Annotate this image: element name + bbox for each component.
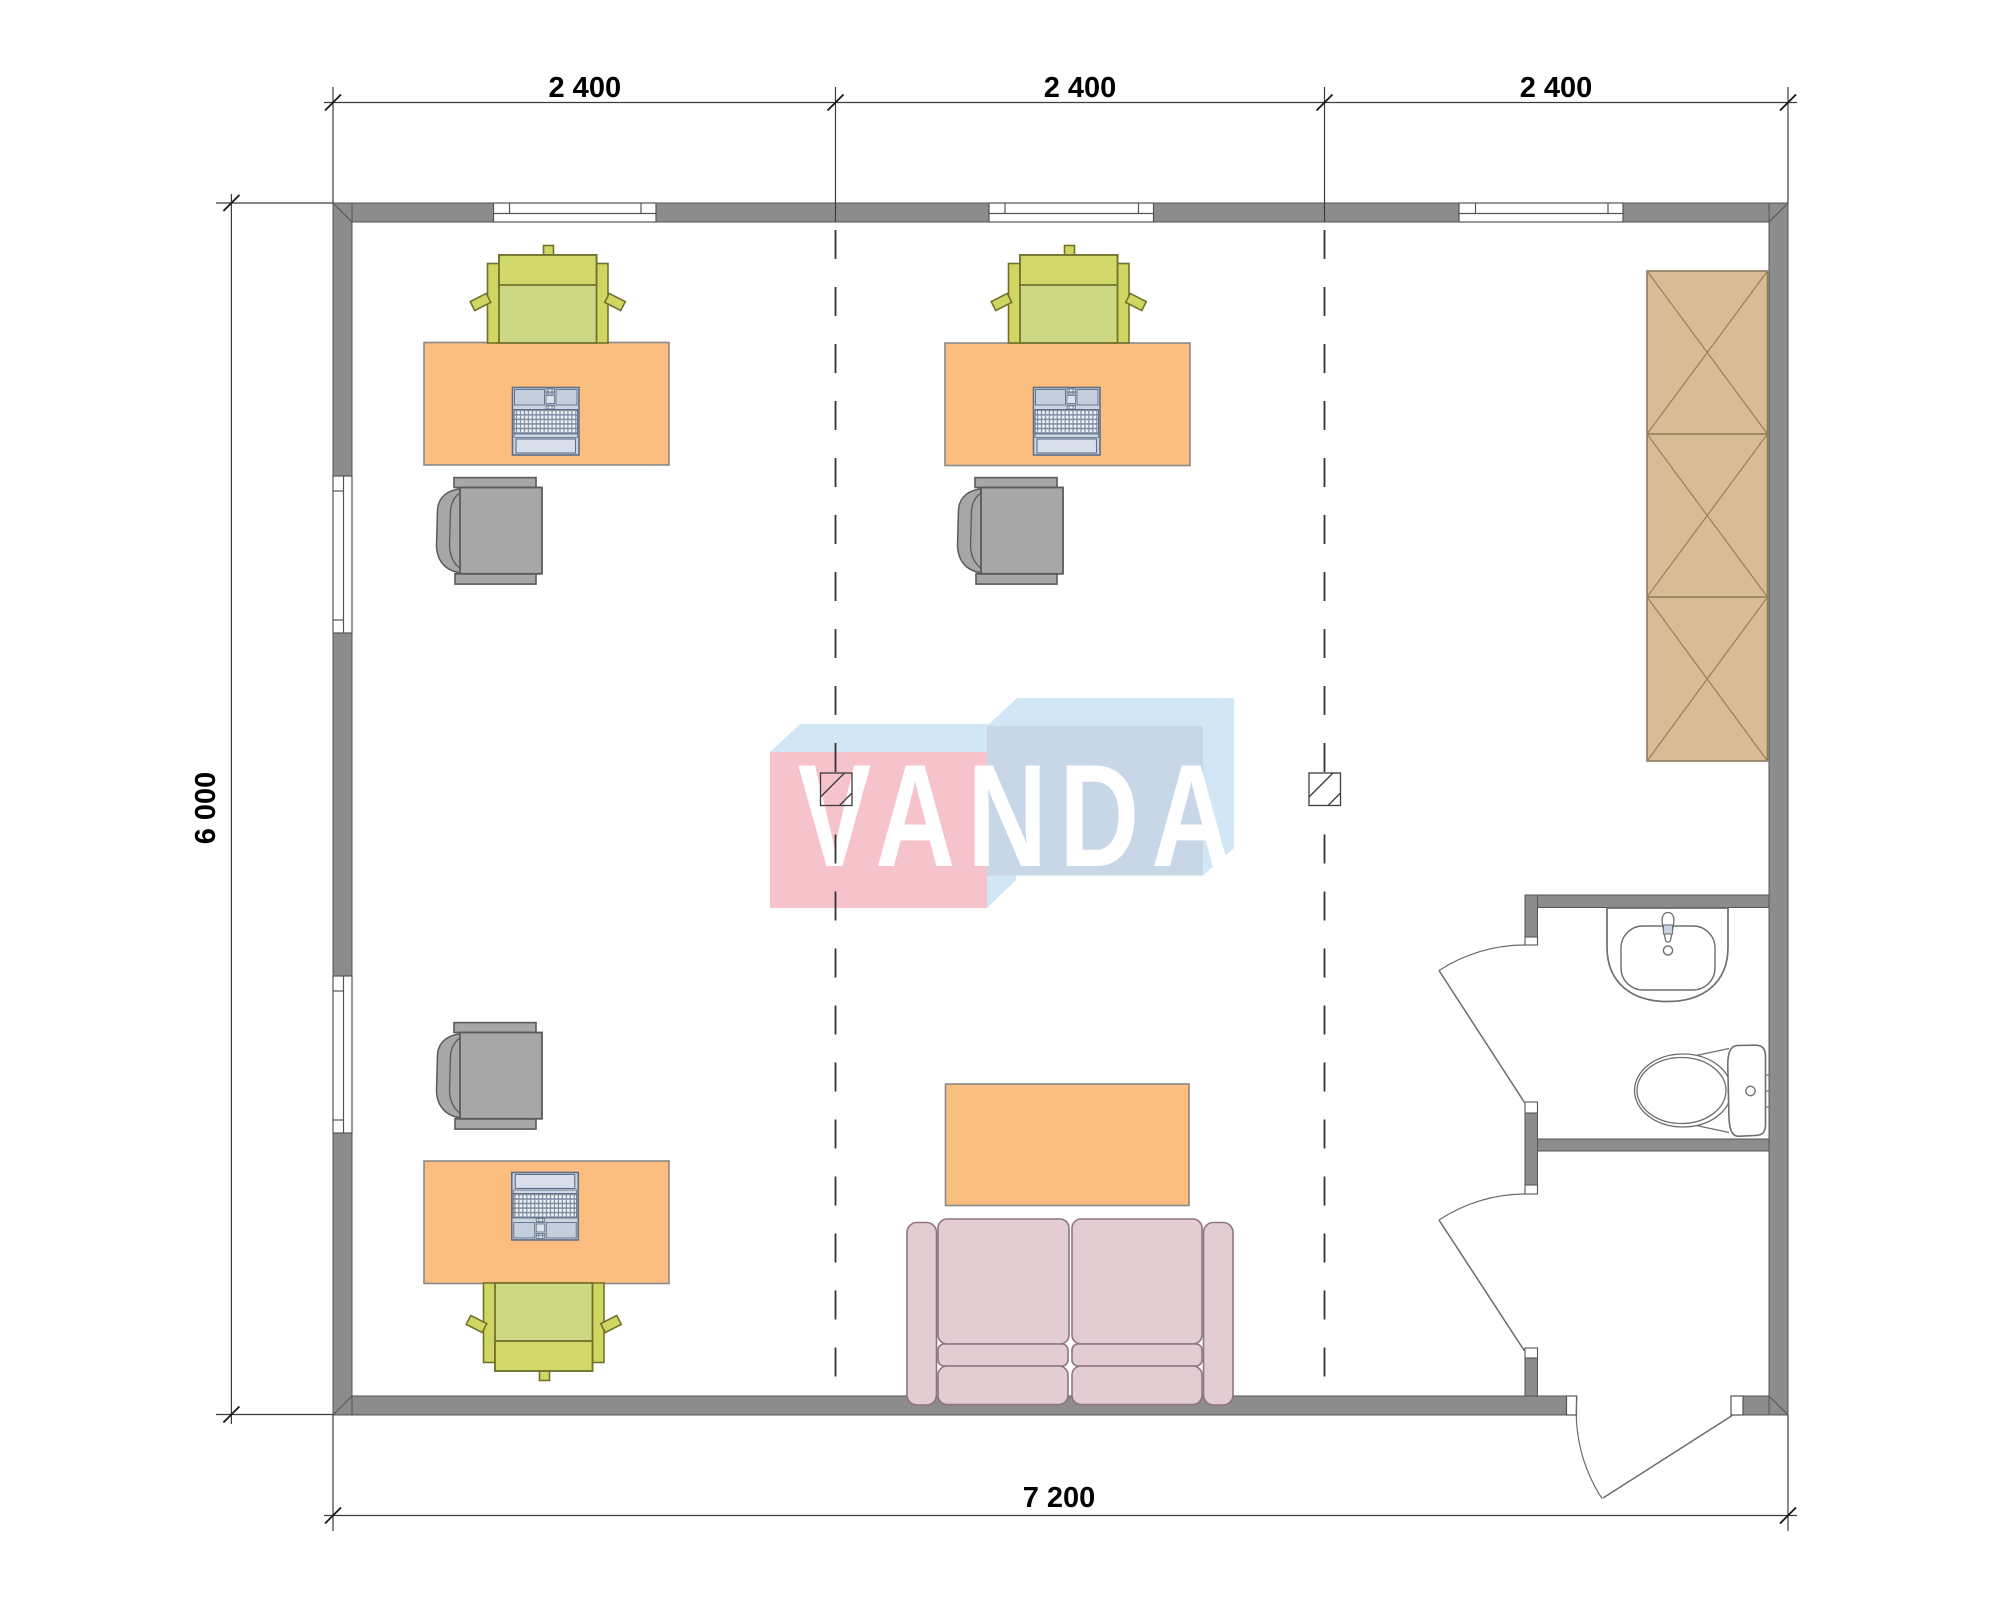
svg-text:VANDA: VANDA <box>798 735 1244 897</box>
svg-text:2 400: 2 400 <box>549 72 622 104</box>
svg-text:2 400: 2 400 <box>1044 72 1117 104</box>
svg-text:2 400: 2 400 <box>1520 72 1593 104</box>
svg-text:7 200: 7 200 <box>1023 1482 1096 1514</box>
svg-text:6 000: 6 000 <box>190 772 222 845</box>
